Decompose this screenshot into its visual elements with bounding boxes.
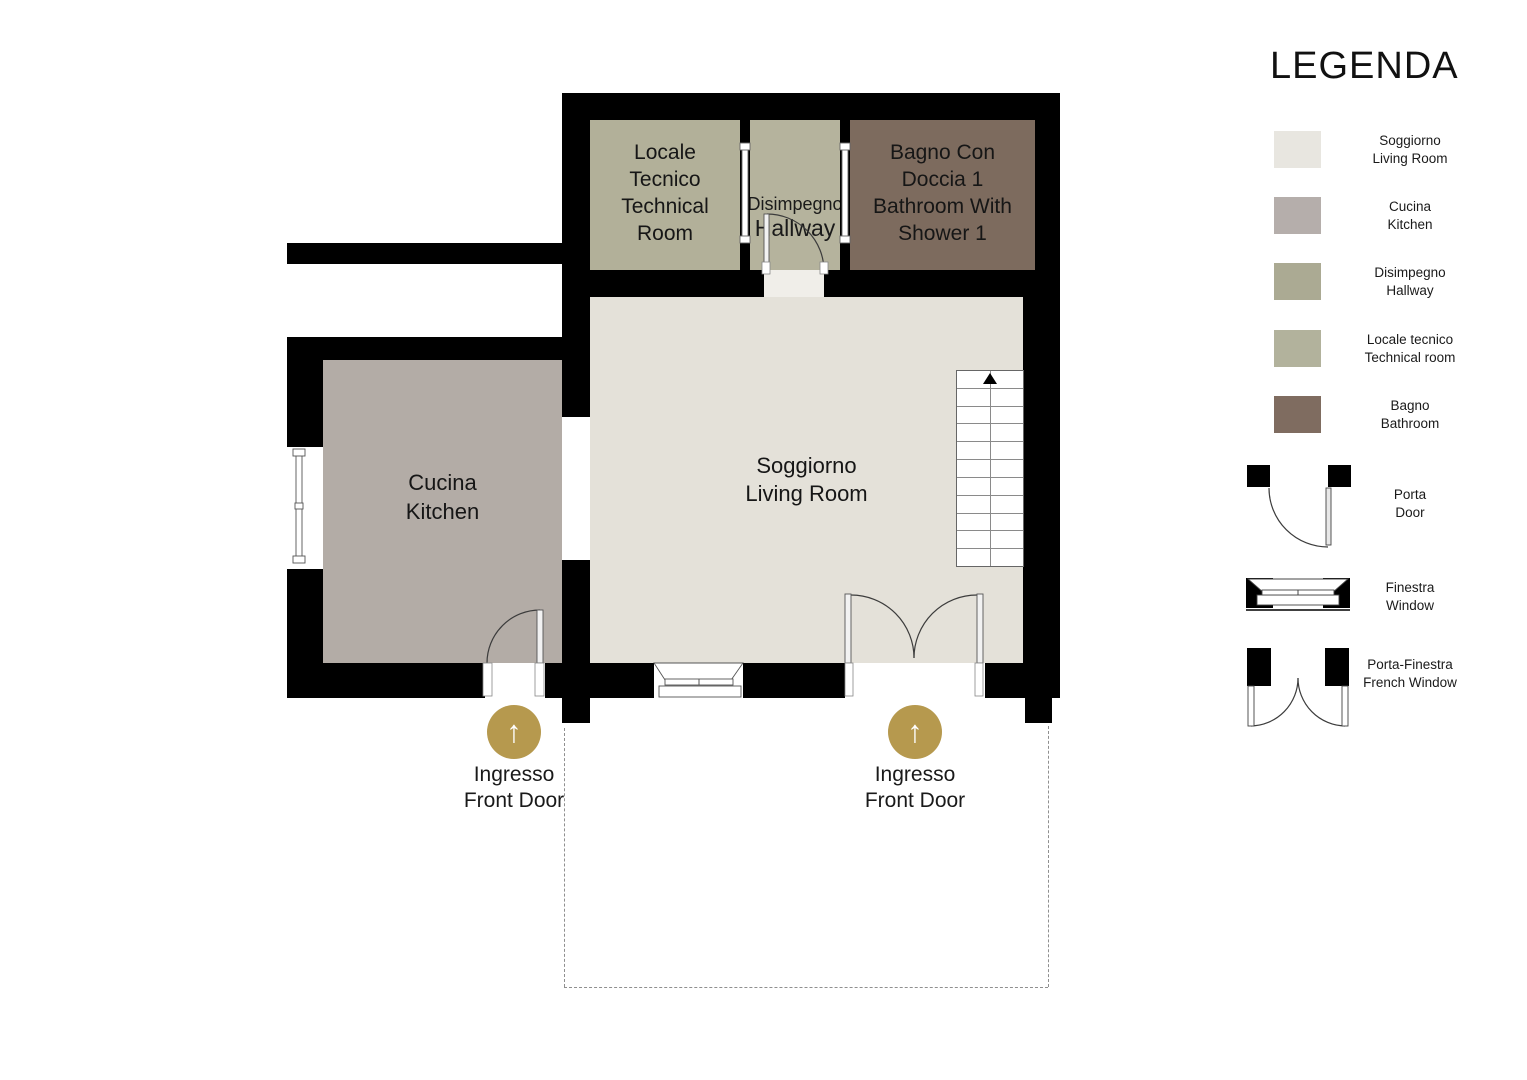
legend-label-window: Finestra Window <box>1310 578 1510 615</box>
entrance-label-kitchen: Ingresso Front Door <box>414 762 614 813</box>
room-technical-label: Locale Tecnico Technical Room <box>621 140 709 248</box>
up-arrow-icon: ↑ <box>907 716 923 747</box>
wall-bottom-4 <box>985 663 1060 698</box>
stairs-up-arrow-icon <box>983 373 997 384</box>
room-kitchen: Cucina Kitchen <box>323 360 562 663</box>
legend-label-kitchen: Cucina Kitchen <box>1310 197 1510 234</box>
legend-label-hallway: Disimpegno Hallway <box>1310 263 1510 300</box>
wall-left-lower <box>562 560 590 723</box>
wall-bottom-1 <box>287 663 485 698</box>
legend-label-technical: Locale tecnico Technical room <box>1310 330 1510 367</box>
room-bathroom: Bagno Con Doccia 1 Bathroom With Shower … <box>850 118 1035 270</box>
room-kitchen-label: Cucina Kitchen <box>406 469 479 525</box>
staircase <box>956 370 1024 567</box>
dashed-boundary-right <box>1048 726 1049 987</box>
floorplan-canvas: Locale Tecnico Technical Room Disimpegno… <box>0 0 1527 1080</box>
wall-mid-left <box>562 270 764 297</box>
room-bathroom-label: Bagno Con Doccia 1 Bathroom With Shower … <box>873 140 1012 248</box>
window-living-icon <box>654 663 743 697</box>
wall-right-stub <box>1025 698 1052 723</box>
wall-kitchen-top <box>287 337 563 360</box>
room-hallway-label-en: Hallway <box>755 215 836 242</box>
legend-label-bathroom: Bagno Bathroom <box>1310 396 1510 433</box>
room-hallway: Disimpegno Hallway <box>750 118 840 270</box>
wall-tech-hall-divider <box>740 118 750 270</box>
wall-right-lower <box>1023 270 1060 698</box>
stair-centerline <box>990 371 991 566</box>
wall-bottom-3 <box>743 663 845 698</box>
entrance-label-living: Ingresso Front Door <box>815 762 1015 813</box>
wall-left-upper <box>562 93 590 417</box>
room-living-label: Soggiorno Living Room <box>745 452 867 508</box>
room-hallway-label-it: Disimpegno <box>747 194 842 215</box>
dashed-boundary-bottom <box>564 987 1048 988</box>
room-technical: Locale Tecnico Technical Room <box>590 118 740 270</box>
legend-label-french-window: Porta-Finestra French Window <box>1310 655 1510 692</box>
entrance-marker-kitchen: ↑ <box>487 705 541 759</box>
hallway-doorway-floor <box>764 270 824 297</box>
up-arrow-icon: ↑ <box>506 716 522 747</box>
legend-title: LEGENDA <box>1270 45 1459 88</box>
legend-label-living: Soggiorno Living Room <box>1310 131 1510 168</box>
wall-kitchen-left-upper <box>287 337 323 447</box>
wall-hall-bath-divider <box>840 118 850 270</box>
wall-bottom-2 <box>545 663 654 698</box>
wall-right-upper <box>1035 120 1060 270</box>
entrance-marker-living: ↑ <box>888 705 942 759</box>
wall-top <box>565 93 1060 120</box>
window-kitchen-icon <box>289 447 323 569</box>
legend-label-door: Porta Door <box>1310 485 1510 522</box>
wall-protruding-left <box>287 243 565 264</box>
